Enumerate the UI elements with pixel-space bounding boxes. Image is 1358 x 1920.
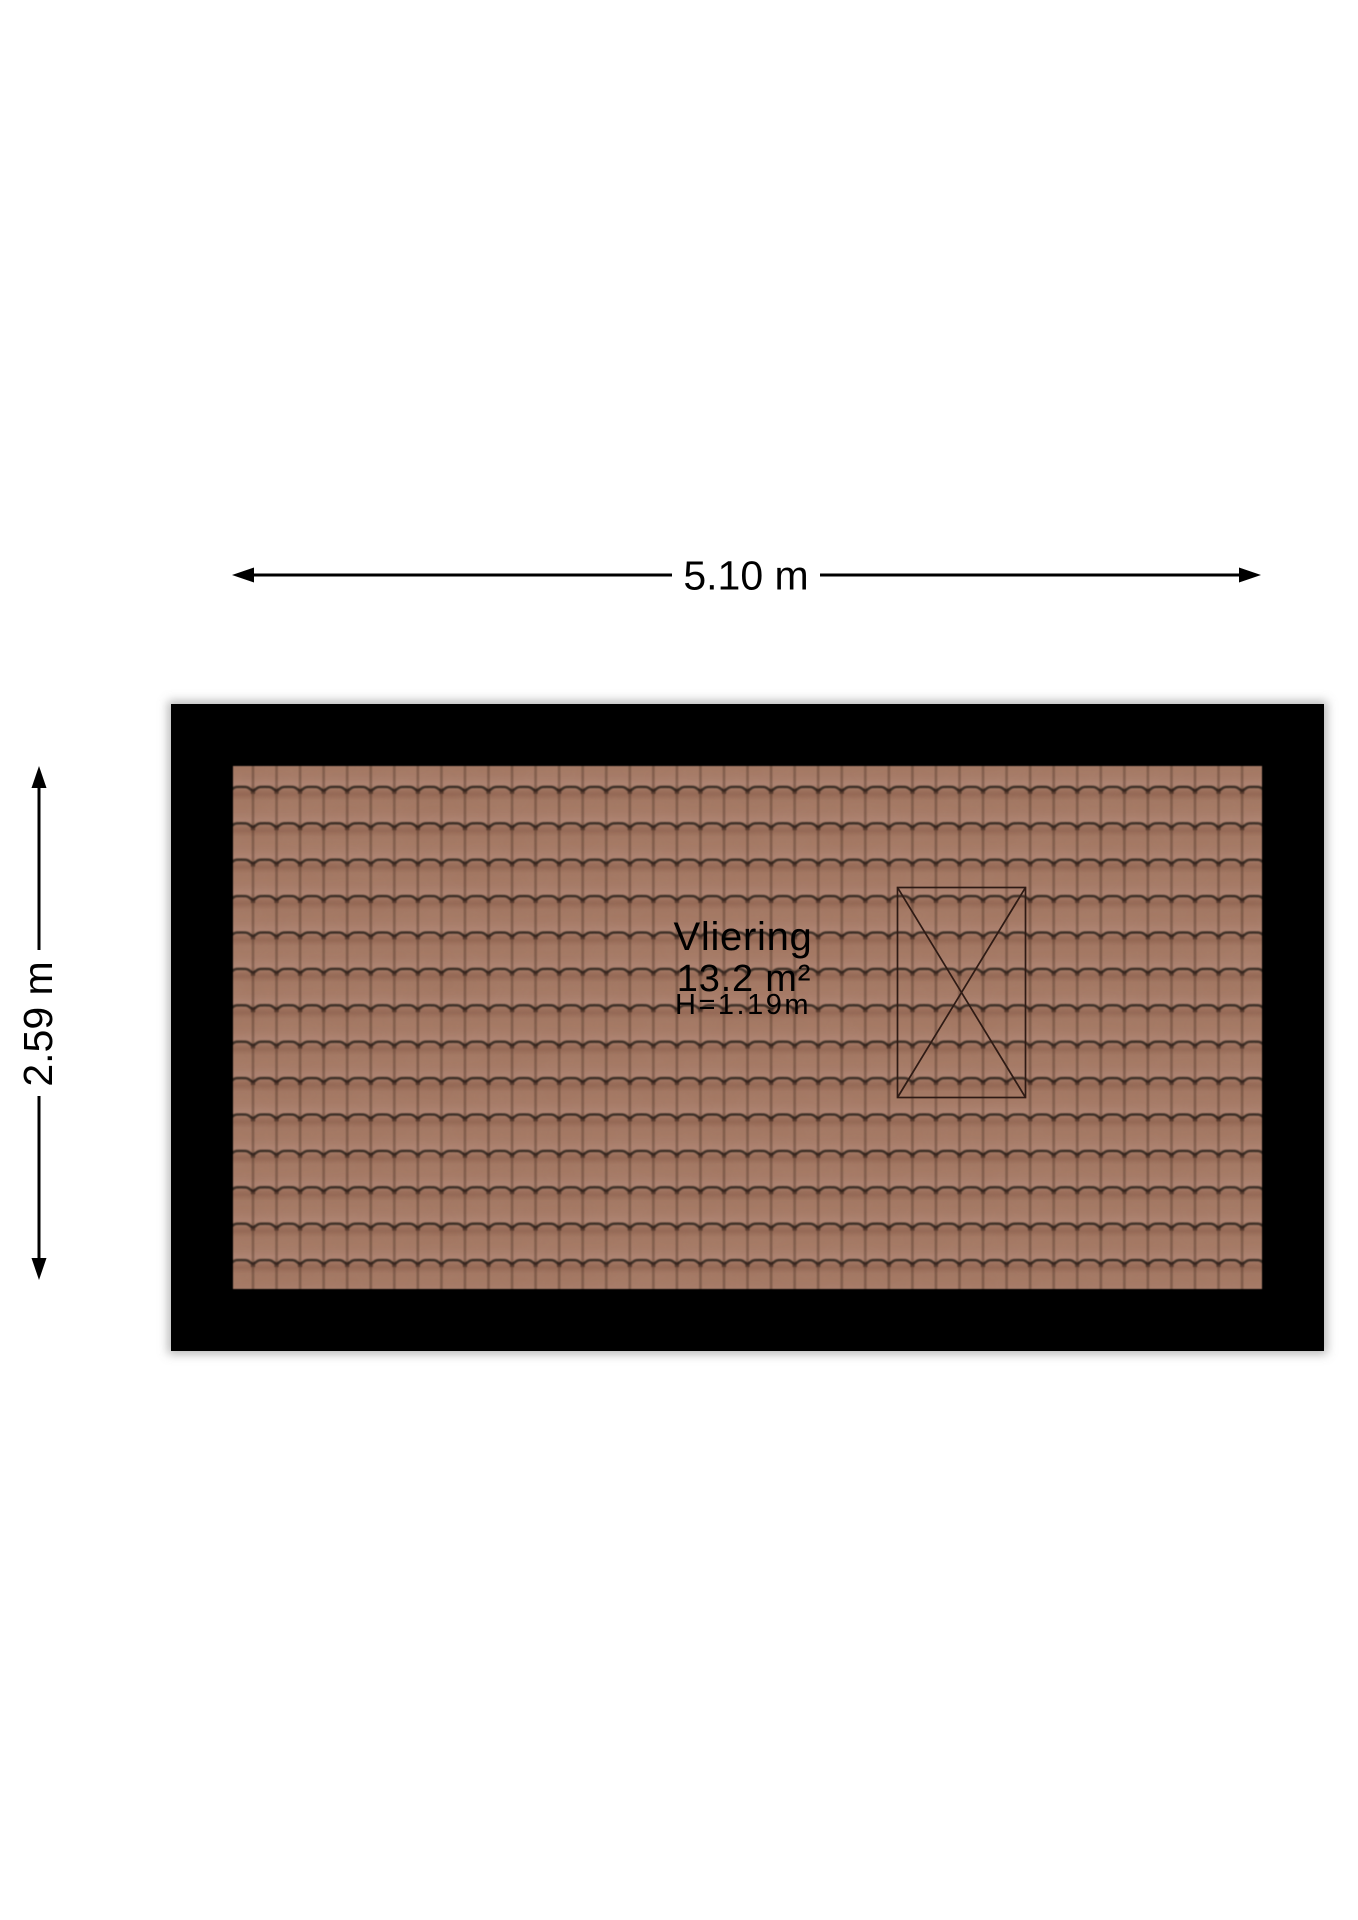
svg-text:2.59 m: 2.59 m (15, 961, 61, 1086)
svg-text:Vliering: Vliering (674, 915, 813, 959)
svg-text:5.10 m: 5.10 m (683, 553, 808, 599)
svg-text:H=1.19m: H=1.19m (675, 989, 811, 1021)
